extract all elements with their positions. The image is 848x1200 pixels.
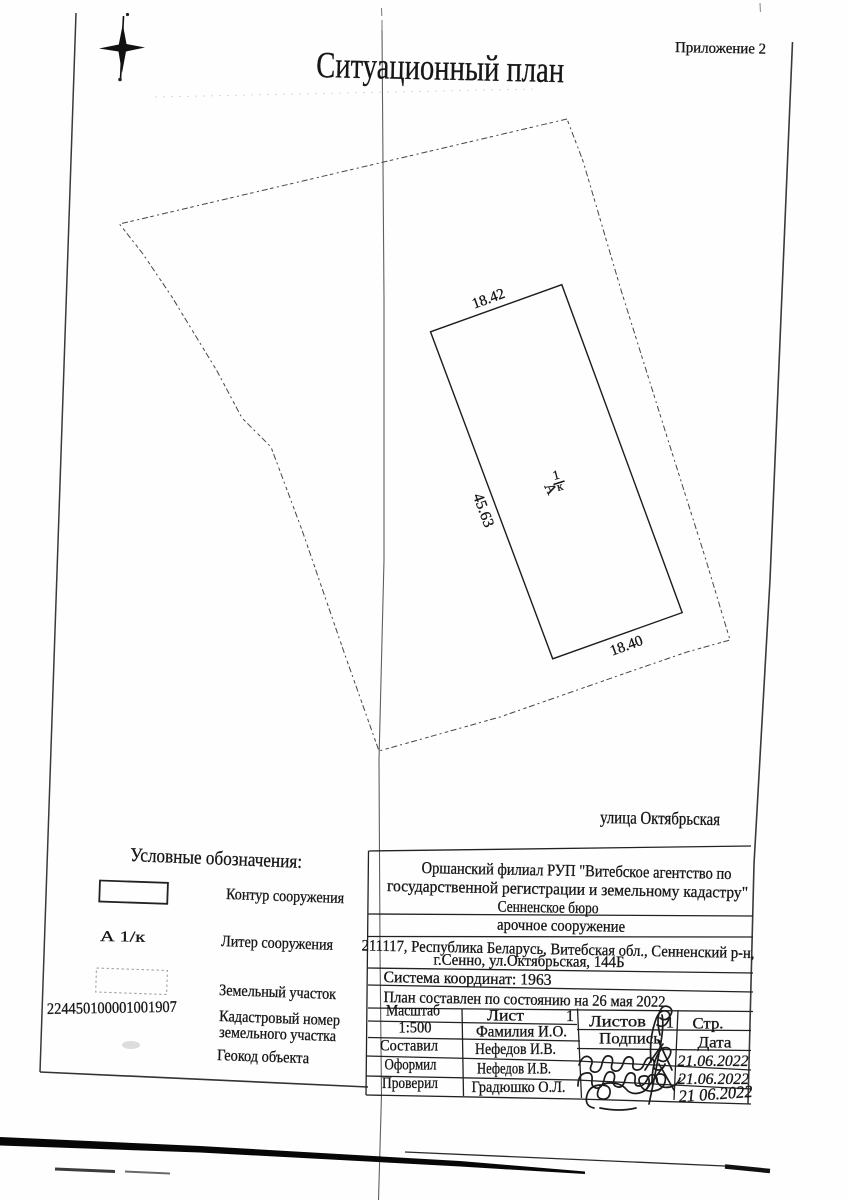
svg-text:Лист: Лист <box>487 1008 524 1025</box>
svg-text:224450100001001907: 224450100001001907 <box>47 999 177 1018</box>
svg-text:Сенненское бюро: Сенненское бюро <box>497 899 598 918</box>
svg-text:Проверил: Проверил <box>382 1075 438 1092</box>
svg-text:Составил: Составил <box>380 1038 438 1055</box>
svg-text:Стр.: Стр. <box>693 1016 724 1033</box>
svg-text:Нефедов И.В.: Нефедов И.В. <box>477 1061 551 1078</box>
svg-text:1: 1 <box>566 1008 574 1025</box>
svg-text:21.06.2022: 21.06.2022 <box>678 1053 749 1070</box>
svg-text:Ситуационный план: Ситуационный план <box>316 45 565 91</box>
svg-text:Листов: Листов <box>589 1014 647 1031</box>
svg-text:Нефедов И.В.: Нефедов И.В. <box>475 1041 556 1058</box>
svg-text:г.Сенно, ул.Октябрьская, 144Б: г.Сенно, ул.Октябрьская, 144Б <box>433 952 624 972</box>
svg-text:1:500: 1:500 <box>399 1020 432 1037</box>
svg-text:Фамилия И.О.: Фамилия И.О. <box>476 1024 567 1041</box>
svg-text:Оформил: Оформил <box>385 1057 437 1074</box>
svg-text:Геокод объекта: Геокод объекта <box>217 1047 310 1067</box>
svg-text:Градюшко О.Л.: Градюшко О.Л. <box>472 1079 566 1096</box>
svg-text:улица Октябрьская: улица Октябрьская <box>600 807 720 829</box>
svg-text:Приложение 2: Приложение 2 <box>675 40 766 58</box>
svg-text:Масштаб: Масштаб <box>386 1003 440 1020</box>
svg-text:арочное сооружение: арочное сооружение <box>497 917 625 936</box>
svg-text:Дата: Дата <box>698 1035 732 1052</box>
svg-text:Система координат: 1963: Система координат: 1963 <box>383 969 551 989</box>
svg-text:А 1/к: А 1/к <box>100 929 146 946</box>
